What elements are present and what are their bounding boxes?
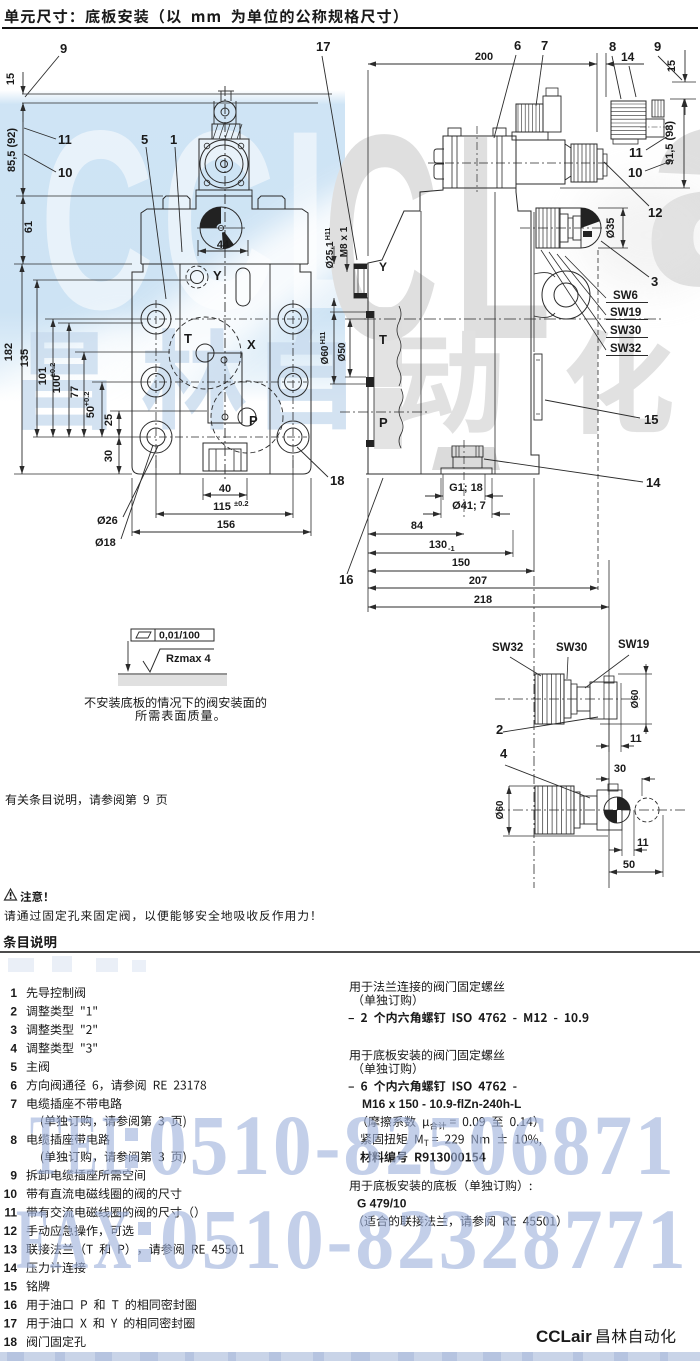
svg-text:10: 10 [628,165,642,180]
svg-text:H11: H11 [320,332,327,345]
svg-text:17: 17 [316,39,330,54]
svg-text:130: 130 [429,539,447,551]
svg-text:Ø41; 7: Ø41; 7 [452,500,486,512]
svg-text:9: 9 [10,1169,17,1183]
svg-text:CL: CL [323,74,566,400]
svg-text:207: 207 [469,575,487,587]
svg-text:G1; 18: G1; 18 [449,482,483,494]
svg-text:182: 182 [3,343,15,361]
svg-text:Rzmax 4: Rzmax 4 [166,653,212,665]
svg-text:4: 4 [10,1042,17,1056]
svg-text:18: 18 [330,473,344,488]
svg-text:FAX: FAX [16,1192,137,1287]
svg-text:TEL: TEL [30,1098,138,1193]
svg-text:30: 30 [614,763,626,775]
svg-text:61: 61 [23,221,35,233]
svg-text:P: P [249,413,258,428]
svg-text:91,5 (98): 91,5 (98) [664,121,676,165]
svg-text:14: 14 [621,50,635,64]
svg-text:±0.2: ±0.2 [48,363,57,378]
svg-text:50: 50 [85,406,97,418]
svg-text:14: 14 [646,475,661,490]
svg-text:SW30: SW30 [610,325,641,337]
svg-text:9: 9 [60,41,67,56]
svg-text:Ø26: Ø26 [97,515,118,527]
svg-text:3: 3 [651,274,658,289]
svg-text:5: 5 [10,1060,17,1074]
svg-text:0,01/100: 0,01/100 [159,630,200,642]
svg-text:T: T [379,332,387,347]
svg-text:6: 6 [514,38,521,53]
svg-text:11: 11 [4,1206,17,1220]
svg-text:11: 11 [629,145,643,160]
svg-text:44: 44 [217,239,230,251]
svg-text:25: 25 [103,414,115,426]
svg-text:Y: Y [379,260,387,274]
svg-text:14: 14 [4,1261,18,1275]
svg-text:218: 218 [474,594,492,606]
svg-text:H11: H11 [325,228,332,241]
svg-text:16: 16 [4,1298,18,1312]
svg-text:P: P [379,415,388,430]
svg-text:1: 1 [170,132,177,147]
svg-text:40: 40 [219,483,231,495]
svg-text:15: 15 [5,73,17,85]
svg-text:11: 11 [637,837,649,849]
svg-text:11: 11 [58,132,72,147]
svg-text:2: 2 [496,722,503,737]
svg-text:Ø18: Ø18 [95,537,116,549]
svg-text:±0.2: ±0.2 [234,499,249,508]
svg-text:10: 10 [4,1187,18,1201]
svg-text:17: 17 [4,1317,18,1331]
svg-text:13: 13 [4,1243,18,1257]
svg-text:10: 10 [58,165,72,180]
svg-text:+0.2: +0.2 [82,392,91,407]
svg-text:8: 8 [10,1133,17,1147]
svg-text:156: 156 [217,519,235,531]
svg-text:X: X [247,337,256,352]
svg-text:15: 15 [666,60,678,72]
svg-text:Ø35: Ø35 [605,218,617,239]
svg-text:8: 8 [609,39,616,54]
svg-text:SW30: SW30 [556,642,587,654]
svg-text:1: 1 [10,986,17,1000]
svg-text:85,5 (92): 85,5 (92) [6,128,18,172]
svg-text:7: 7 [541,38,548,53]
svg-text:SW6: SW6 [613,290,638,302]
svg-text:0510-82328771: 0510-82328771 [160,1191,689,1287]
svg-text:0510-82506871: 0510-82506871 [148,1097,677,1193]
svg-text:Ø60: Ø60 [320,345,331,364]
svg-text:11: 11 [630,733,642,745]
svg-text:SW32: SW32 [610,343,641,355]
svg-text:SW19: SW19 [618,639,649,651]
svg-text:6: 6 [10,1079,17,1093]
svg-text:84: 84 [411,520,424,532]
svg-text:7: 7 [10,1097,17,1111]
svg-text:77: 77 [69,386,81,398]
svg-text:9: 9 [654,39,661,54]
svg-text:Ø60: Ø60 [630,689,641,708]
svg-text:15: 15 [644,412,658,427]
svg-text:SW32: SW32 [492,642,523,654]
svg-text:M8 x 1: M8 x 1 [339,226,350,257]
svg-text:135: 135 [19,349,31,367]
svg-text:50: 50 [623,859,635,871]
svg-text:12: 12 [648,205,662,220]
svg-text:-1: -1 [448,544,455,553]
svg-text:2: 2 [10,1005,17,1019]
svg-text:150: 150 [452,557,470,569]
svg-text:12: 12 [4,1224,18,1238]
svg-text:5: 5 [141,132,148,147]
svg-text:15: 15 [4,1280,18,1294]
svg-text:30: 30 [103,450,115,462]
svg-text:3: 3 [10,1023,17,1037]
svg-text:4: 4 [500,746,508,761]
svg-text:Y: Y [213,268,222,283]
svg-text:CCLair: CCLair [536,1327,592,1346]
svg-text:SW19: SW19 [610,307,641,319]
svg-text:T: T [184,331,192,346]
svg-text:16: 16 [339,572,353,587]
svg-text:Ø60: Ø60 [495,800,506,819]
svg-text:18: 18 [4,1335,18,1349]
svg-text:Ø50: Ø50 [337,342,348,361]
svg-text:115: 115 [213,501,231,513]
svg-text:200: 200 [475,51,493,63]
